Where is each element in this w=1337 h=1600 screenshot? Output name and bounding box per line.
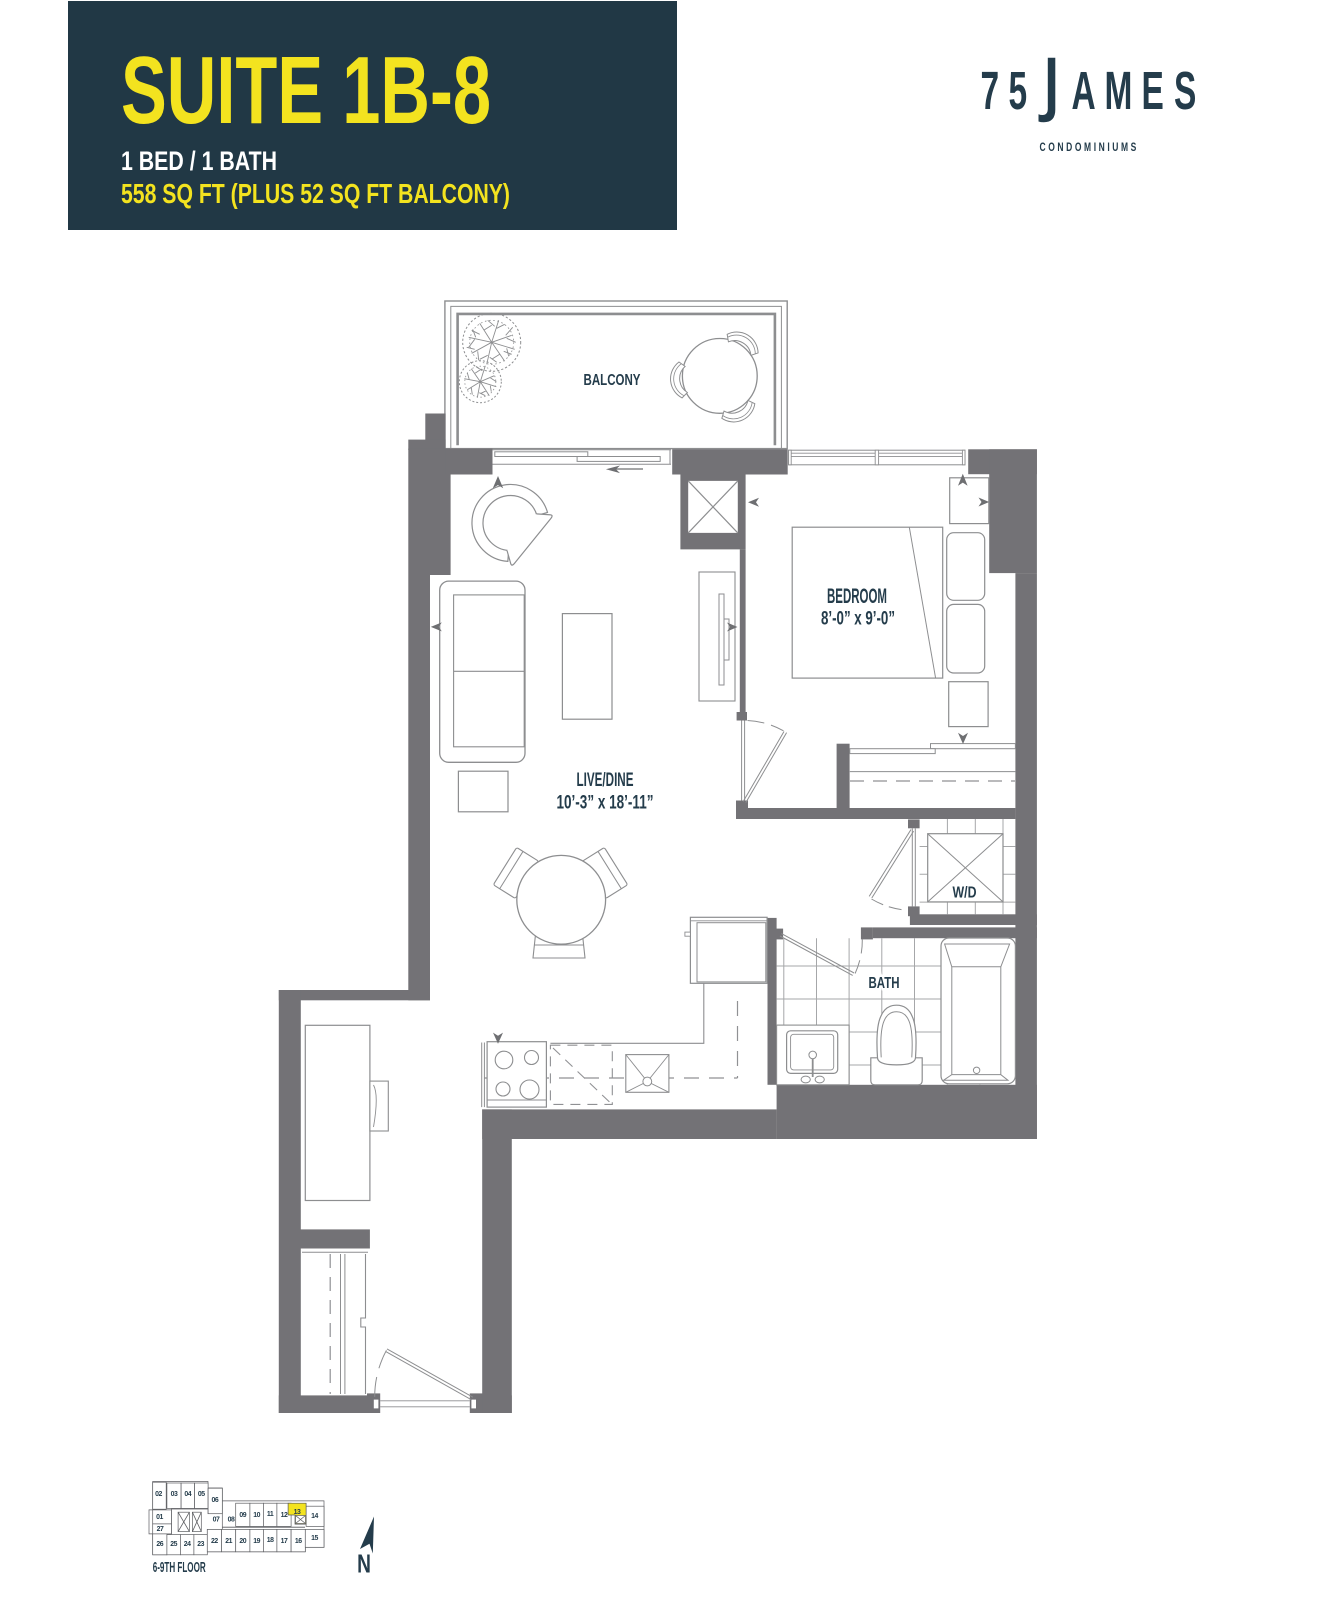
svg-text:14: 14 xyxy=(311,1513,318,1520)
svg-text:21: 21 xyxy=(225,1538,232,1545)
svg-text:558 SQ FT (PLUS 52 SQ FT BALCO: 558 SQ FT (PLUS 52 SQ FT BALCONY) xyxy=(121,178,510,209)
svg-text:10: 10 xyxy=(253,1512,260,1519)
svg-text:05: 05 xyxy=(198,1491,205,1498)
svg-text:03: 03 xyxy=(171,1491,178,1498)
svg-text:07: 07 xyxy=(213,1517,220,1524)
svg-text:06: 06 xyxy=(212,1497,219,1504)
svg-text:02: 02 xyxy=(155,1491,162,1498)
svg-text:22: 22 xyxy=(211,1538,218,1545)
svg-text:27: 27 xyxy=(157,1526,164,1533)
svg-text:10’-3” x 18’-11”: 10’-3” x 18’-11” xyxy=(557,793,654,814)
svg-text:N: N xyxy=(357,1550,371,1578)
svg-text:W/D: W/D xyxy=(953,885,977,902)
svg-text:A: A xyxy=(1072,60,1096,121)
svg-text:09: 09 xyxy=(239,1512,246,1519)
svg-text:5: 5 xyxy=(1009,60,1028,121)
svg-text:M: M xyxy=(1105,60,1133,121)
svg-text:E: E xyxy=(1142,60,1164,121)
svg-text:BEDROOM: BEDROOM xyxy=(827,585,887,608)
svg-text:7: 7 xyxy=(981,60,1000,121)
svg-text:LIVE/DINE: LIVE/DINE xyxy=(577,770,634,791)
svg-text:04: 04 xyxy=(184,1491,191,1498)
svg-text:08: 08 xyxy=(228,1517,235,1524)
svg-text:BALCONY: BALCONY xyxy=(584,372,641,389)
svg-text:20: 20 xyxy=(239,1538,246,1545)
svg-text:18: 18 xyxy=(267,1537,274,1544)
svg-text:25: 25 xyxy=(170,1541,177,1548)
svg-text:11: 11 xyxy=(267,1511,274,1518)
svg-text:01: 01 xyxy=(156,1514,163,1521)
svg-text:23: 23 xyxy=(197,1541,204,1548)
svg-text:S: S xyxy=(1174,60,1196,121)
svg-text:1 BED / 1 BATH: 1 BED / 1 BATH xyxy=(121,146,277,176)
svg-text:8’-0” x 9’-0”: 8’-0” x 9’-0” xyxy=(821,609,895,630)
svg-text:6-9TH FLOOR: 6-9TH FLOOR xyxy=(153,1560,206,1576)
svg-text:13: 13 xyxy=(294,1509,301,1516)
svg-text:16: 16 xyxy=(295,1538,302,1545)
svg-text:17: 17 xyxy=(281,1538,288,1545)
svg-text:26: 26 xyxy=(156,1541,163,1548)
svg-text:24: 24 xyxy=(184,1541,191,1548)
svg-text:15: 15 xyxy=(311,1535,318,1542)
svg-text:CONDOMINIUMS: CONDOMINIUMS xyxy=(1040,142,1139,155)
svg-text:SUITE 1B-8: SUITE 1B-8 xyxy=(121,37,491,144)
svg-text:19: 19 xyxy=(253,1538,260,1545)
svg-text:BATH: BATH xyxy=(869,975,900,992)
svg-text:12: 12 xyxy=(281,1512,288,1519)
